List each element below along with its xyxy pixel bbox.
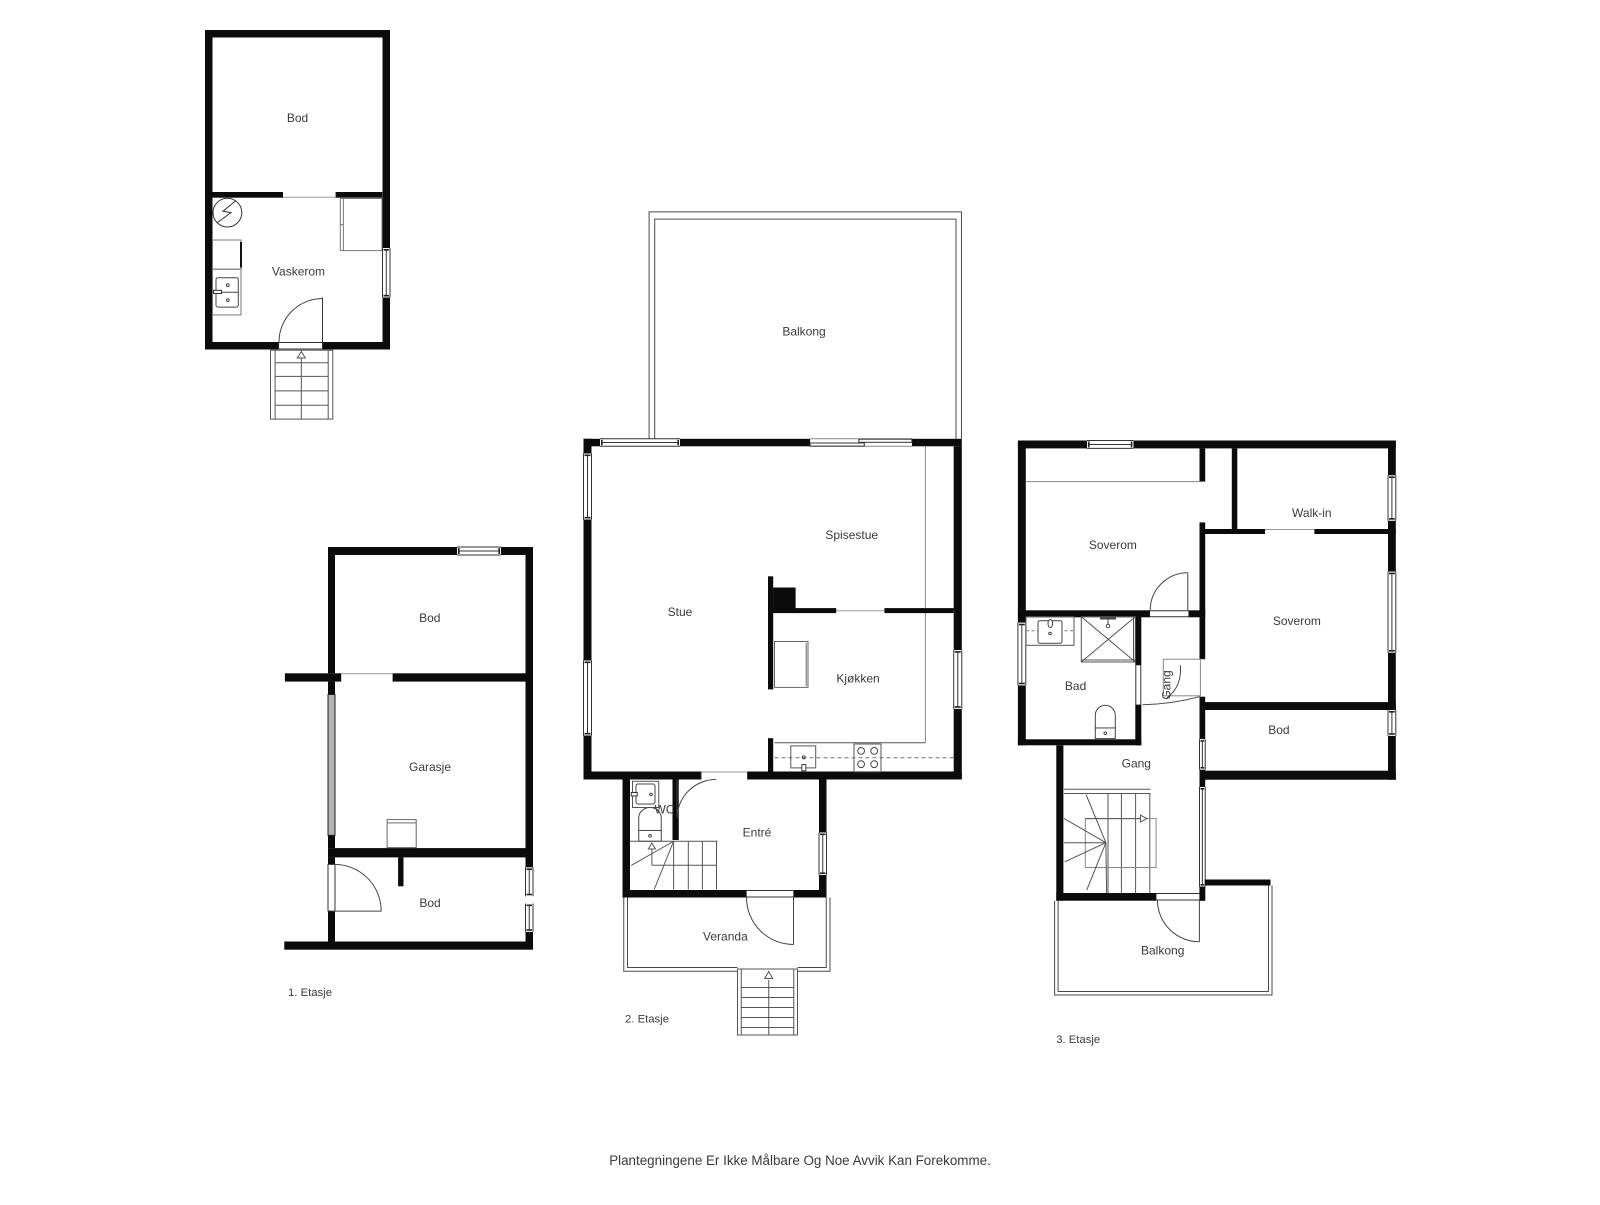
svg-text:Stue: Stue [668, 605, 693, 619]
svg-text:Soverom: Soverom [1089, 538, 1137, 552]
svg-text:Gang: Gang [1122, 756, 1151, 770]
svg-text:Kjøkken: Kjøkken [836, 671, 879, 685]
svg-text:Veranda: Veranda [703, 930, 748, 944]
svg-text:Bod: Bod [419, 896, 440, 910]
svg-text:Plantegningene Er Ikke Målbare: Plantegningene Er Ikke Målbare Og Noe Av… [609, 1153, 991, 1168]
svg-text:Gang: Gang [1160, 670, 1174, 699]
svg-text:3. Etasje: 3. Etasje [1056, 1034, 1100, 1046]
svg-text:Balkong: Balkong [782, 325, 825, 339]
svg-text:Walk-in: Walk-in [1292, 506, 1332, 520]
svg-text:Entré: Entré [743, 826, 772, 840]
svg-text:Garasje: Garasje [409, 760, 451, 774]
svg-text:2. Etasje: 2. Etasje [625, 1013, 669, 1025]
svg-text:1. Etasje: 1. Etasje [288, 987, 332, 999]
svg-text:Vaskerom: Vaskerom [272, 265, 325, 279]
svg-text:Bod: Bod [1268, 723, 1289, 737]
svg-text:WC: WC [655, 802, 675, 816]
svg-text:Spisestue: Spisestue [825, 528, 878, 542]
svg-text:Bad: Bad [1065, 679, 1086, 693]
svg-text:Bod: Bod [287, 111, 308, 125]
svg-text:Balkong: Balkong [1141, 943, 1184, 957]
svg-text:Bod: Bod [419, 611, 440, 625]
svg-text:Soverom: Soverom [1273, 614, 1321, 628]
